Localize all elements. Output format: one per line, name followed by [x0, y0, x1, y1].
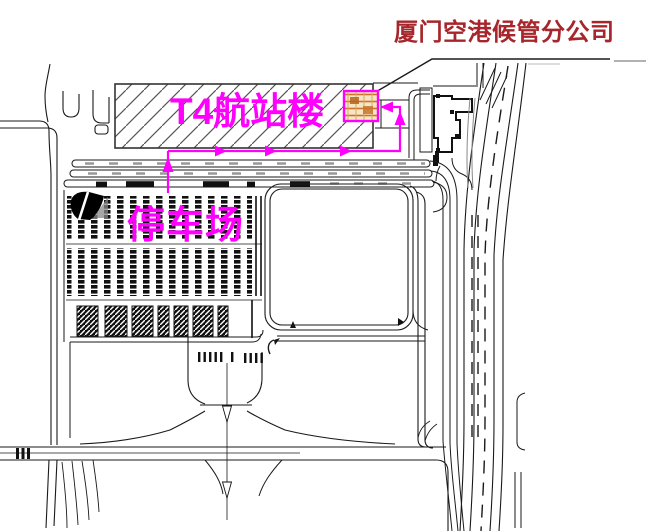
entrance-driveway [80, 337, 395, 520]
reserved-lot-loop [265, 184, 428, 330]
parking-lot-label: 停车场 [127, 207, 244, 245]
parking-lot [64, 190, 425, 438]
site-plan-drawing [0, 0, 646, 531]
toll-gate-ticks [198, 352, 263, 363]
bottom-road [0, 447, 448, 531]
arrow-left-into-office [380, 102, 393, 113]
arrow-up-to-office [395, 111, 406, 125]
stop-line-ticks [16, 448, 30, 459]
office-highlight-box [344, 91, 378, 121]
north-boundary-lines [433, 61, 646, 86]
right-road-network [410, 63, 526, 531]
airport-site-map: 厦门空港候管分公司 T4航站楼 停车场 [0, 0, 646, 531]
terminal-t4-label: T4航站楼 [170, 93, 324, 130]
angled-stall-blocks [77, 306, 228, 336]
company-name-label: 厦门空港候管分公司 [394, 21, 615, 45]
